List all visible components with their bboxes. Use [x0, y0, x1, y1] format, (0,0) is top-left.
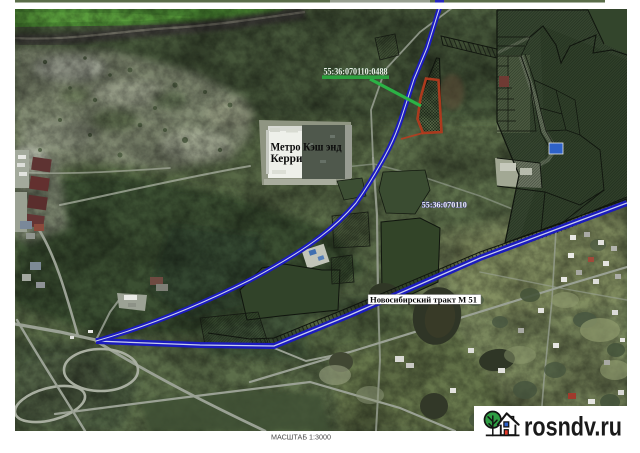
svg-text:МАСШТАБ 1:3000: МАСШТАБ 1:3000 [271, 435, 331, 442]
svg-text:55:36:070110:0488: 55:36:070110:0488 [324, 68, 388, 78]
svg-text:55:36:070110: 55:36:070110 [422, 200, 467, 210]
svg-text:Новосибирский тракт М 51: Новосибирский тракт М 51 [370, 295, 477, 304]
svg-text:rosndv.ru: rosndv.ru [524, 412, 622, 442]
svg-text:Керри: Керри [271, 151, 303, 165]
